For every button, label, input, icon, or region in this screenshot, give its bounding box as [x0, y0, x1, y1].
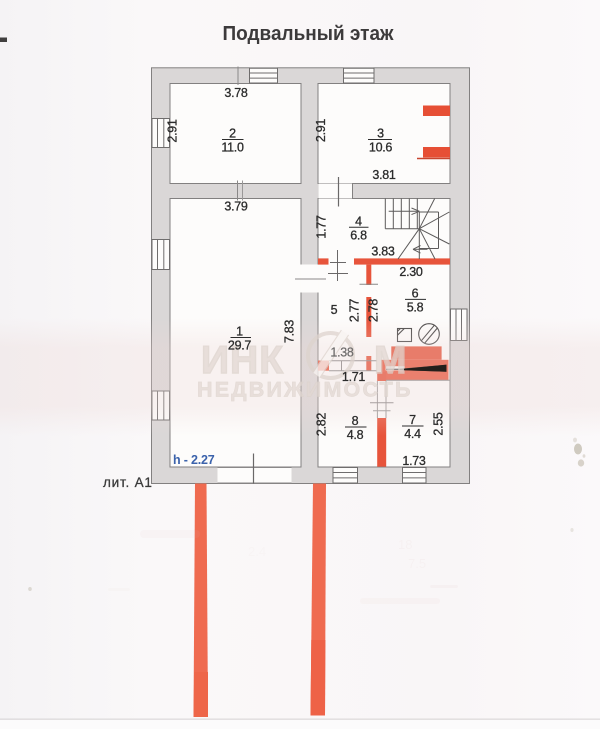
svg-text:4.4: 4.4 [404, 427, 421, 441]
svg-text:2.82: 2.82 [315, 413, 329, 436]
svg-text:1.71: 1.71 [342, 370, 365, 384]
svg-text:10.6: 10.6 [369, 141, 392, 155]
svg-text:4: 4 [355, 214, 362, 228]
svg-text:18: 18 [398, 537, 412, 552]
svg-text:1.73: 1.73 [402, 454, 425, 468]
svg-text:НЕДВИЖИМОСТЬ: НЕДВИЖИМОСТЬ [197, 378, 413, 402]
svg-text:1: 1 [236, 325, 243, 339]
svg-text:3.81: 3.81 [372, 168, 395, 182]
svg-text:1.77: 1.77 [315, 215, 329, 238]
svg-text:3.79: 3.79 [224, 200, 247, 214]
svg-text:6: 6 [412, 286, 419, 300]
svg-text:2.78: 2.78 [367, 299, 381, 322]
svg-text:2.55: 2.55 [432, 412, 446, 435]
svg-text:11.0: 11.0 [221, 141, 244, 155]
svg-text:2.91: 2.91 [166, 119, 180, 142]
svg-text:Подвальный этаж: Подвальный этаж [223, 23, 395, 45]
svg-text:7.83: 7.83 [283, 320, 297, 343]
svg-text:2.4: 2.4 [248, 544, 266, 559]
svg-text:3.83: 3.83 [371, 245, 394, 259]
svg-text:h - 2.27: h - 2.27 [173, 453, 215, 467]
svg-text:5.8: 5.8 [407, 300, 424, 314]
svg-text:5: 5 [331, 303, 338, 317]
svg-text:2.77: 2.77 [348, 299, 362, 322]
svg-text:М: М [374, 339, 407, 382]
svg-text:2.91: 2.91 [314, 119, 328, 142]
svg-text:6.8: 6.8 [350, 228, 367, 242]
svg-text:7: 7 [409, 413, 416, 427]
svg-text:29.7: 29.7 [228, 339, 251, 353]
svg-text:1.38: 1.38 [330, 346, 353, 360]
svg-text:3.78: 3.78 [224, 86, 247, 100]
svg-text:8: 8 [352, 414, 359, 428]
svg-text:лит. А1: лит. А1 [103, 475, 153, 490]
svg-text:3: 3 [377, 127, 384, 141]
svg-text:2: 2 [229, 127, 236, 141]
svg-text:2.30: 2.30 [399, 265, 422, 279]
svg-text:4.8: 4.8 [347, 428, 364, 442]
svg-text:7.5: 7.5 [408, 556, 426, 571]
